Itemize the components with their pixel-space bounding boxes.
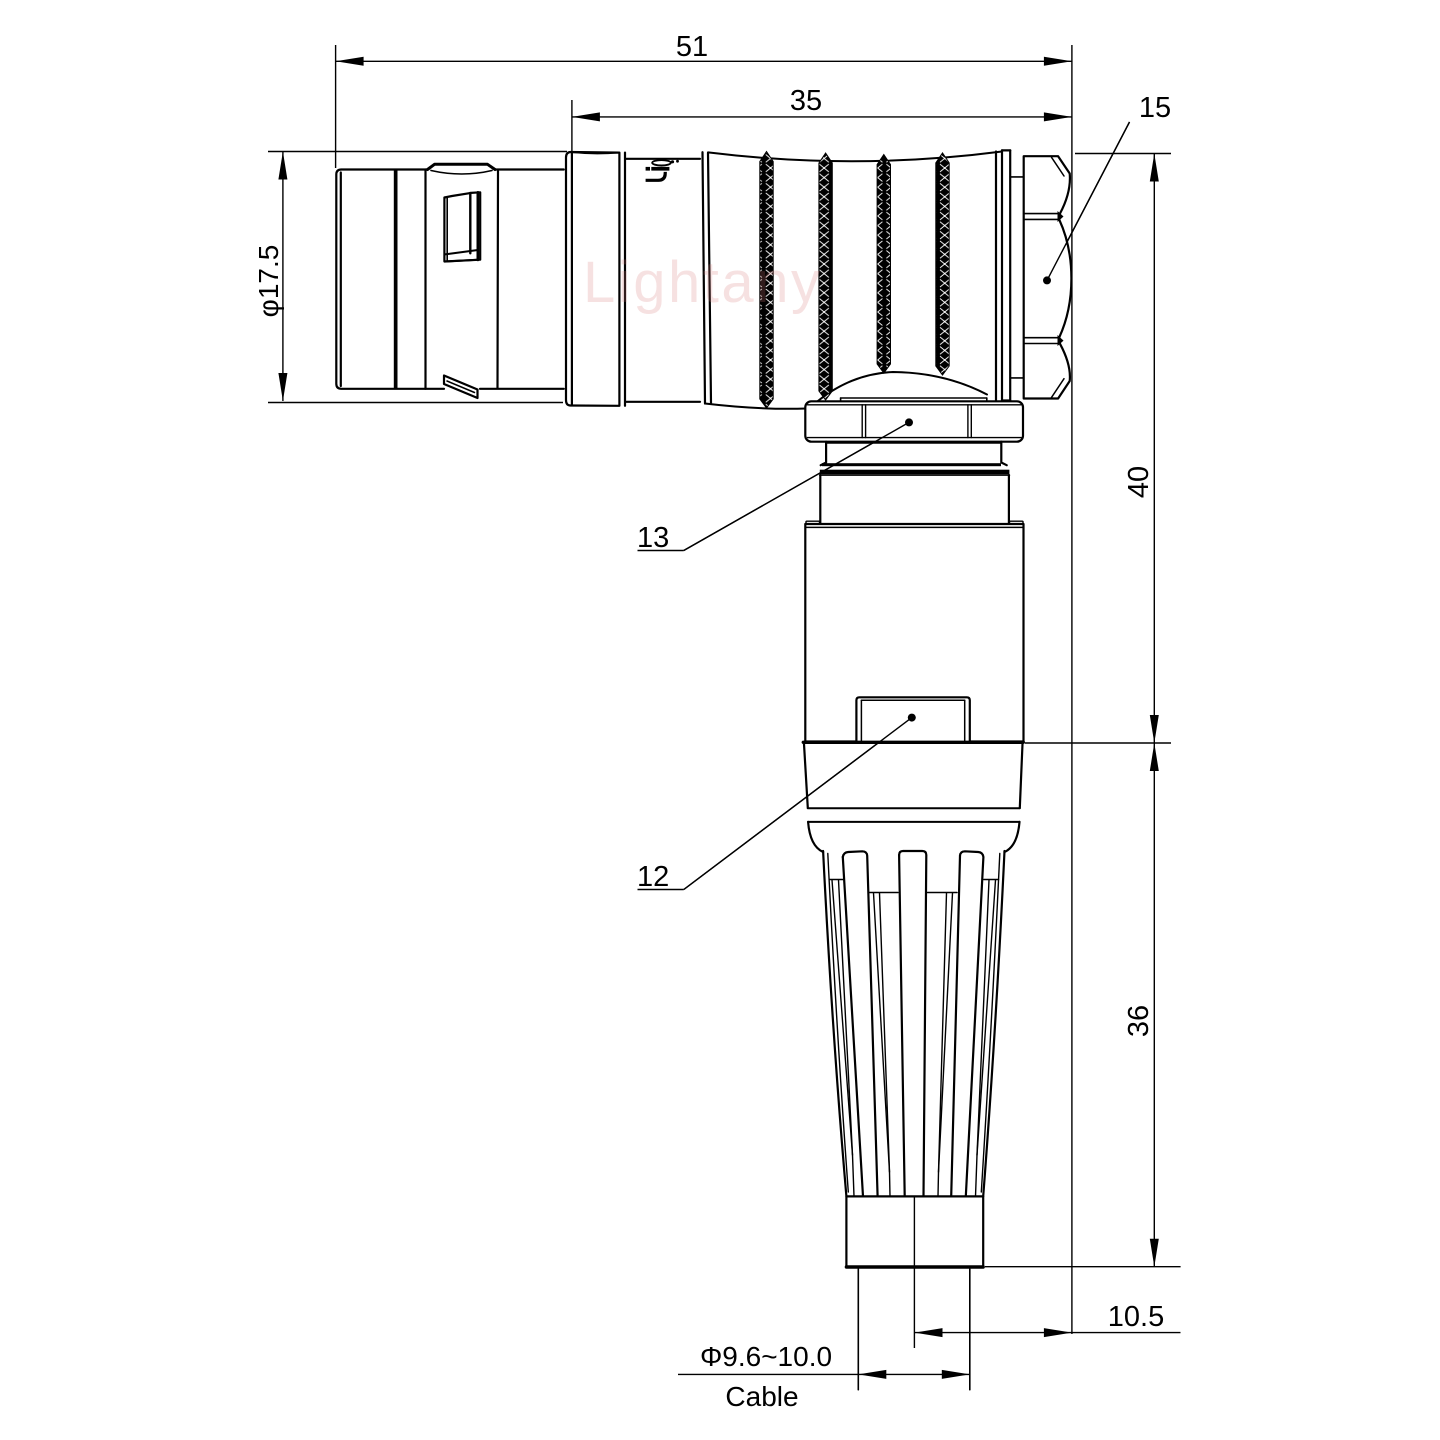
svg-text:10.5: 10.5 — [1108, 1301, 1164, 1333]
svg-text:40: 40 — [1123, 466, 1155, 498]
svg-text:Φ9.6~10.0: Φ9.6~10.0 — [700, 1341, 832, 1372]
svg-text:12: 12 — [637, 861, 669, 893]
svg-text:13: 13 — [637, 522, 669, 554]
svg-text:Cable: Cable — [725, 1381, 798, 1412]
svg-text:36: 36 — [1123, 1005, 1155, 1037]
svg-text:35: 35 — [790, 85, 822, 117]
svg-text:15: 15 — [1139, 92, 1171, 124]
svg-text:φ17.5: φ17.5 — [253, 245, 284, 318]
svg-text:51: 51 — [676, 31, 708, 63]
